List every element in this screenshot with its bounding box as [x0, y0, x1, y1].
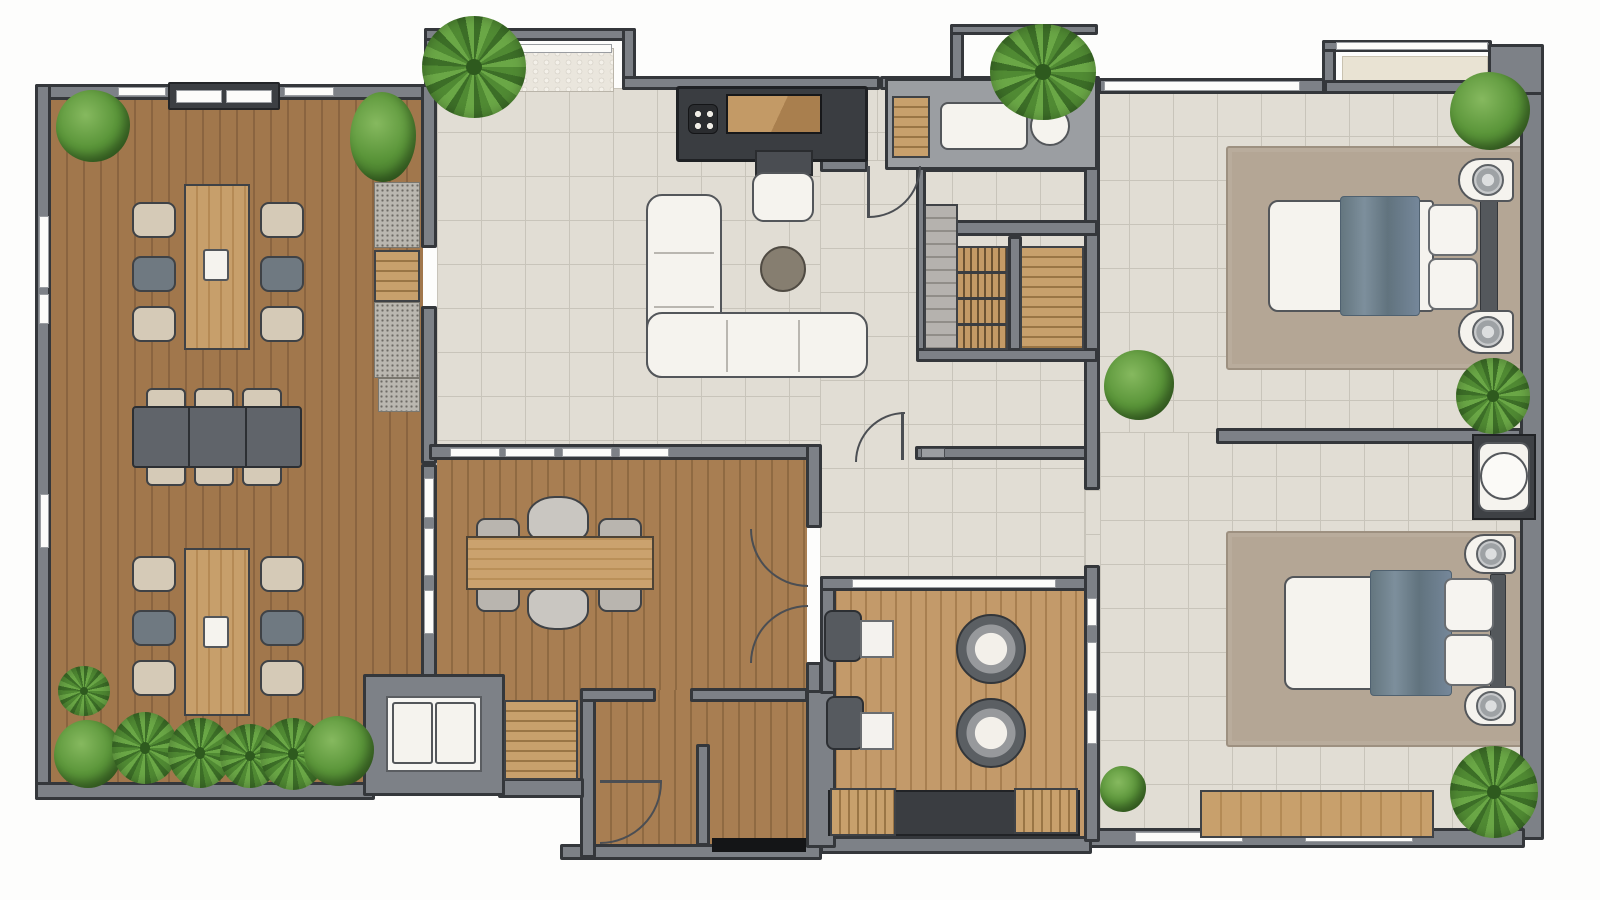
hall-wall-box	[921, 448, 945, 458]
bed2-pillow-1	[1444, 578, 1494, 632]
meeting2-chair-right-1	[260, 556, 304, 592]
spiky-bedroom1-plant	[1456, 358, 1530, 434]
bed2-lamp-top	[1476, 539, 1506, 569]
wall-entry-hall-divider	[696, 744, 710, 846]
wall-dining-right-upper	[806, 444, 822, 528]
wall-entry-hall-left	[580, 690, 596, 858]
wall-left	[35, 84, 51, 800]
window-living-dining-4	[619, 448, 669, 457]
palm-terrace-plant	[422, 16, 526, 118]
long-table	[132, 406, 302, 468]
wall-entry-hall-top-b	[690, 688, 808, 702]
den-desk-2	[860, 712, 894, 750]
window-box-pane-1	[176, 90, 222, 103]
window-dining-left-3	[424, 590, 434, 634]
wc-wood-mat	[892, 96, 930, 158]
bed2-lamp-bottom	[1476, 691, 1506, 721]
window-dining-left-1	[424, 478, 434, 518]
meeting2-chair-right-2	[260, 610, 304, 646]
long-table-divider-2	[245, 408, 247, 466]
den-round-seat-1	[956, 614, 1026, 684]
sofa-cushion-line-1	[654, 252, 714, 254]
meeting1-table-card	[203, 249, 229, 281]
window-living-dining-1	[450, 448, 500, 457]
dining-table	[466, 536, 654, 590]
wall-den-bottom	[820, 836, 1092, 854]
den-round-seat-2	[956, 698, 1026, 768]
sofa-cushion-line-4	[798, 320, 800, 372]
den-bench-right	[1014, 788, 1078, 834]
bed1-lamp-bottom	[1472, 316, 1504, 348]
den-desk-1	[860, 620, 894, 658]
bush-hall-plant	[1104, 350, 1174, 420]
meeting1-chair-right-3	[260, 306, 304, 342]
bush-bedroom1-topright-plant	[1450, 72, 1530, 150]
stair-landing-slats	[1020, 246, 1084, 350]
fern-wc-plant	[990, 24, 1096, 120]
floor-plan	[0, 0, 1600, 900]
window-bedroom1-top	[1104, 81, 1300, 91]
wall-entry-hall-top-a	[580, 688, 656, 702]
bush-leftroom-topright-plant	[350, 92, 416, 182]
entry-steps	[504, 700, 578, 780]
window-dining-left-2	[424, 528, 434, 576]
wall-stair-bottom	[916, 348, 1098, 362]
window-left-2	[39, 294, 49, 324]
meeting2-chair-left-2	[132, 610, 176, 646]
long-table-divider-1	[188, 408, 190, 466]
meeting2-chair-left-1	[132, 556, 176, 592]
hall-doorway-floor	[1085, 490, 1101, 565]
window-left-1	[39, 216, 49, 288]
living-ottoman	[752, 172, 814, 222]
bed1-pillow-1	[1428, 204, 1478, 256]
tv-screen	[726, 94, 822, 134]
bed2-bench	[1200, 790, 1434, 838]
bed1-blanket	[1340, 196, 1420, 316]
window-den-right-1	[1087, 598, 1097, 626]
meeting1-chair-right-1	[260, 202, 304, 238]
bed2-blanket	[1370, 570, 1452, 696]
window-topleft-a	[118, 87, 166, 96]
grass-tuft-1	[58, 666, 110, 716]
door-leaf-entry-hall	[600, 780, 662, 783]
sofa-cushion-line-3	[726, 320, 728, 372]
meeting1-chair-right-2	[260, 256, 304, 292]
window-left-3	[40, 494, 49, 548]
sofa-cushion-line-2	[654, 306, 714, 308]
bed1-lamp-top	[1472, 164, 1504, 196]
sofa-horizontal-section	[646, 312, 868, 378]
meeting1-chair-left-1	[132, 202, 176, 238]
big-bedroom2-plant	[1450, 746, 1538, 838]
coffee-table	[760, 246, 806, 292]
tv-decor-stones	[688, 104, 718, 134]
pebble-mat	[518, 48, 614, 92]
gravel-strip-1	[374, 182, 420, 248]
meeting1-chair-left-3	[132, 306, 176, 342]
den-chair-2	[826, 696, 864, 750]
gravel-strip-2	[374, 302, 420, 378]
entry-door-panel-left	[392, 702, 433, 764]
bush-corridor-small-plant	[1100, 766, 1146, 812]
window-living-dining-3	[562, 448, 612, 457]
dining-chair-head-bottom	[527, 586, 589, 630]
meeting2-chair-right-3	[260, 660, 304, 696]
window-den-right-3	[1087, 710, 1097, 744]
window-den-right-2	[1087, 642, 1097, 694]
den-chair-1	[824, 610, 862, 662]
meeting2-table-card	[203, 616, 229, 648]
door-leaf-hall-mid	[901, 412, 904, 460]
bed1-pillow-2	[1428, 258, 1478, 310]
bed2-shower-circle	[1480, 452, 1528, 500]
window-topleft-b	[284, 87, 334, 96]
wall-stair-top-right	[954, 220, 1098, 236]
bush-topleft-plant	[56, 90, 130, 162]
gravel-strip-3	[378, 378, 420, 412]
staircase-flight	[924, 204, 958, 350]
meeting2-chair-left-3	[132, 660, 176, 696]
door-leaf-stair-hall	[867, 166, 870, 218]
wall-divider-leftroom-b	[421, 306, 437, 464]
bush-bottomleft-right-plant	[304, 716, 374, 786]
bed2-pillow-2	[1444, 634, 1494, 686]
wall-divider-leftroom-a	[421, 84, 437, 248]
window-terrace-top	[516, 44, 612, 53]
wood-step-strip	[374, 250, 420, 302]
entry-threshold	[712, 838, 806, 852]
entry-door-panel-right	[435, 702, 476, 764]
window-den-top	[852, 579, 1056, 588]
wall-steps-bay-bottom	[498, 778, 584, 798]
window-living-dining-2	[505, 448, 555, 457]
meeting1-chair-left-2	[132, 256, 176, 292]
den-bench-left	[830, 788, 896, 836]
bed1-headboard	[1480, 198, 1498, 314]
window-terrace3	[1336, 42, 1488, 50]
stair-shaft-lattice	[956, 246, 1008, 350]
window-box-pane-2	[226, 90, 272, 103]
